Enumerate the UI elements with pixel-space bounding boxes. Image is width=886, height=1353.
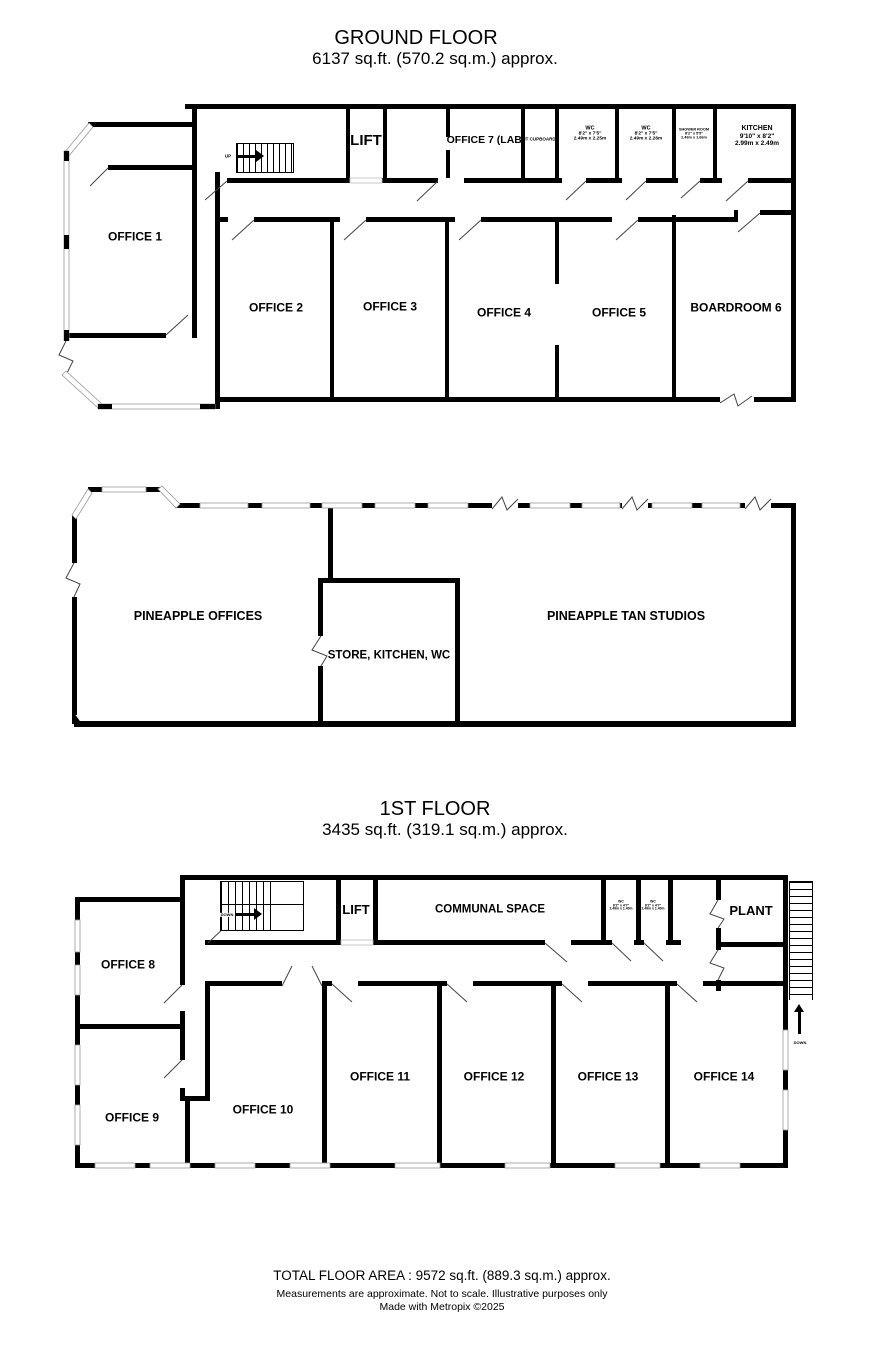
room-label-lift-gf: LIFT bbox=[350, 133, 382, 150]
room-label-store-kitchen-wc: STORE, KITCHEN, WC bbox=[328, 650, 450, 663]
room-label-shower-room: SHOWER ROOM 8'2" x 5'5" 2.49m x 1.66m bbox=[679, 128, 709, 141]
room-label-wc-1: WC 8'2" x 7'5" 2.49m x 2.25m bbox=[574, 126, 607, 143]
room-label-it-cupboard: IT CUPBOARD bbox=[524, 138, 555, 143]
ground-floor-stairs-up-arrow-icon bbox=[238, 155, 256, 158]
room-label-wc-2: WC 8'2" x 7'5" 2.49m x 2.26m bbox=[630, 126, 663, 143]
fire-escape-stairs-icon bbox=[789, 881, 813, 1000]
annex-walls bbox=[72, 487, 796, 727]
credit-text: Made with Metropix ©2025 bbox=[379, 1301, 504, 1313]
room-label-office-4: OFFICE 4 bbox=[477, 306, 531, 319]
room-label-office-1: OFFICE 1 bbox=[108, 230, 162, 243]
ground-floor-walls bbox=[66, 104, 796, 409]
fire-escape-label: DOWN bbox=[794, 1041, 807, 1045]
ground-floor-title: GROUND FLOOR bbox=[334, 27, 497, 50]
first-floor-stairs-icon bbox=[220, 881, 304, 931]
annex-windows bbox=[66, 486, 771, 666]
room-label-office-2: OFFICE 2 bbox=[249, 301, 303, 314]
first-floor-walls bbox=[75, 875, 788, 1168]
room-label-office-13: OFFICE 13 bbox=[578, 1070, 639, 1083]
room-label-office-7-lab: OFFICE 7 (LAB) bbox=[447, 135, 526, 147]
ground-floor-subtitle: 6137 sq.ft. (570.2 sq.m.) approx. bbox=[312, 49, 558, 69]
room-label-office-9: OFFICE 9 bbox=[105, 1111, 159, 1124]
room-label-office-5: OFFICE 5 bbox=[592, 306, 646, 319]
kitchen-name: KITCHEN bbox=[735, 125, 779, 133]
room-label-office-8: OFFICE 8 bbox=[101, 958, 155, 971]
room-label-lift-ff: LIFT bbox=[342, 903, 369, 917]
room-label-office-12: OFFICE 12 bbox=[464, 1070, 525, 1083]
ground-floor-stairs-label: UP bbox=[225, 155, 231, 160]
room-label-office-3: OFFICE 3 bbox=[363, 300, 417, 313]
room-label-boardroom-6: BOARDROOM 6 bbox=[690, 301, 781, 314]
room-label-office-11: OFFICE 11 bbox=[350, 1070, 410, 1083]
first-floor-title: 1ST FLOOR bbox=[380, 798, 491, 821]
disclaimer-text: Measurements are approximate. Not to sca… bbox=[277, 1288, 608, 1300]
wc2-dims-metric: 2.49m x 2.26m bbox=[630, 137, 663, 142]
wca-dims-metric: 2.49m x 1.40m bbox=[610, 908, 633, 912]
floorplan-page: UP DOWN DOWN GROUND FLOOR 6137 sq.ft. (5… bbox=[0, 0, 886, 1353]
room-label-communal-space: COMMUNAL SPACE bbox=[435, 904, 545, 917]
ground-floor-stairs-icon bbox=[236, 143, 294, 173]
kitchen-dims-metric: 2.99m x 2.49m bbox=[735, 140, 779, 147]
room-label-pineapple-offices: PINEAPPLE OFFICES bbox=[134, 610, 263, 624]
kitchen-dims-imperial: 9'10" x 8'2" bbox=[735, 133, 779, 140]
ground-floor-doors bbox=[90, 168, 760, 335]
total-floor-area: TOTAL FLOOR AREA : 9572 sq.ft. (889.3 sq… bbox=[273, 1268, 610, 1283]
room-label-office-10: OFFICE 10 bbox=[233, 1103, 294, 1116]
floorplan-drawing bbox=[0, 0, 886, 1353]
wc1-dims-metric: 2.49m x 2.25m bbox=[574, 137, 607, 142]
fire-escape-up-arrow-icon bbox=[798, 1012, 801, 1034]
first-floor-subtitle: 3435 sq.ft. (319.1 sq.m.) approx. bbox=[322, 820, 568, 840]
first-floor-stairs-label: DOWN bbox=[220, 913, 235, 917]
wcb-dims-metric: 2.49m x 1.40m bbox=[642, 908, 665, 912]
room-label-wc-a: WC 8'2" x 4'7" 2.49m x 1.40m bbox=[610, 900, 633, 911]
first-floor-stairs-down-arrow-icon bbox=[236, 913, 254, 916]
room-label-office-14: OFFICE 14 bbox=[694, 1070, 755, 1083]
room-label-kitchen: KITCHEN 9'10" x 8'2" 2.99m x 2.49m bbox=[735, 125, 779, 147]
shower-dims-metric: 2.49m x 1.66m bbox=[679, 136, 709, 140]
room-label-wc-b: WC 8'2" x 4'7" 2.49m x 1.40m bbox=[642, 900, 665, 911]
room-label-pineapple-tan-studios: PINEAPPLE TAN STUDIOS bbox=[547, 610, 705, 624]
room-label-plant: PLANT bbox=[729, 904, 772, 918]
